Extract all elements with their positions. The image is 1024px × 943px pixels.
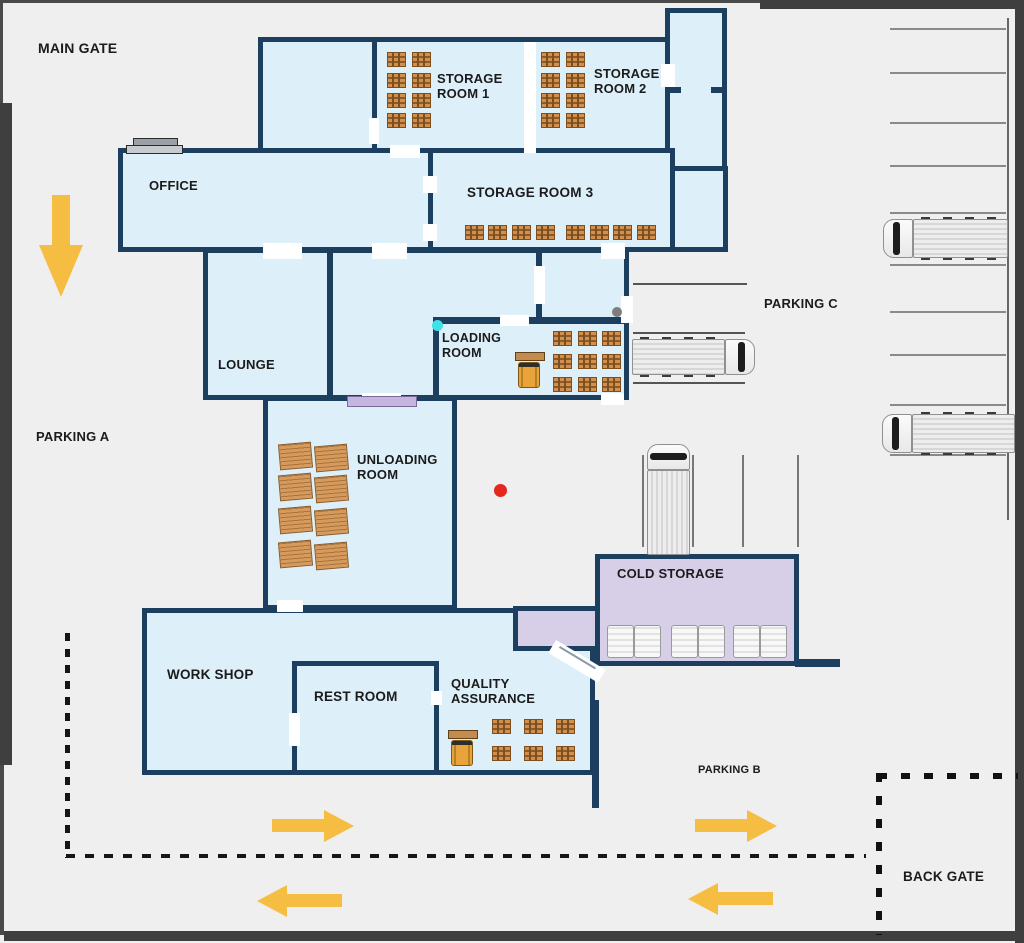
room-storage-3-extension — [670, 166, 728, 252]
label-parking-a: PARKING A — [36, 429, 109, 444]
freezer-unit-icon — [733, 625, 760, 658]
route-line-horizontal — [66, 854, 866, 858]
freezer-unit-icon — [607, 625, 634, 658]
pallet-crate-icon — [541, 113, 560, 128]
label-office: OFFICE — [149, 178, 198, 193]
label-unloading-room: UNLOADING ROOM — [357, 452, 452, 483]
dock-lane-line — [633, 283, 747, 285]
label-cold-storage: COLD STORAGE — [617, 566, 724, 581]
truck-icon — [882, 414, 1015, 453]
door-gap — [390, 145, 420, 158]
label-storage-room-1: STORAGE ROOM 1 — [437, 71, 517, 102]
warehouse-floor-plan: MAIN GATE PARKING A PARKING C PARKING B … — [0, 0, 1024, 943]
route-line-vertical — [65, 633, 70, 858]
room-rest-room — [292, 661, 439, 775]
label-loading-room: LOADING ROOM — [442, 331, 514, 361]
dock-lane-line — [633, 382, 745, 384]
pallet-crate-icon — [488, 225, 507, 240]
pallet-crate-icon — [590, 225, 609, 240]
parking-bay-line — [890, 165, 1006, 167]
door-gap — [372, 243, 407, 259]
pallet-crate-icon — [602, 354, 621, 369]
back-gate-line-top — [878, 773, 1018, 779]
main-gate-opening — [0, 0, 3, 104]
pallet-crate-icon — [556, 719, 575, 734]
pallet-crate-icon — [578, 354, 597, 369]
boundary-left — [0, 103, 12, 765]
label-storage-room-2: STORAGE ROOM 2 — [594, 66, 669, 97]
pallet-crate-icon — [541, 73, 560, 88]
pallet-crate-icon — [387, 113, 406, 128]
door-gap — [601, 243, 625, 259]
pallet-planks-icon — [278, 540, 313, 569]
pallet-crate-icon — [524, 746, 543, 761]
pallet-crate-icon — [566, 93, 585, 108]
forklift-icon — [515, 352, 545, 388]
door-gap — [423, 224, 437, 241]
pallet-crate-icon — [412, 73, 431, 88]
pallet-planks-icon — [314, 475, 349, 504]
parking-bay-line — [890, 28, 1006, 30]
wall-cold-storage-stub — [795, 659, 840, 667]
boundary-bottom — [4, 931, 1024, 941]
parking-bay-line — [890, 264, 1006, 266]
pallet-crate-icon — [566, 113, 585, 128]
pallet-planks-icon — [314, 508, 349, 537]
label-work-shop: WORK SHOP — [167, 667, 254, 683]
label-parking-c: PARKING C — [764, 296, 838, 311]
door-gap — [534, 266, 545, 304]
wall-annex-stub-right — [711, 87, 727, 93]
pallet-crate-icon — [524, 719, 543, 734]
parking-bay-line — [890, 212, 1006, 214]
label-main-gate: MAIN GATE — [38, 40, 117, 57]
pallet-crate-icon — [602, 377, 621, 392]
dock-mat — [347, 396, 417, 407]
pallet-planks-icon — [278, 473, 313, 502]
wall-loading-top — [433, 317, 629, 324]
pallet-crate-icon — [465, 225, 484, 240]
gray-dot-marker — [612, 307, 622, 317]
truck-icon — [647, 444, 690, 555]
parking-slot-line — [692, 455, 694, 547]
door-gap — [289, 713, 300, 746]
pallet-crate-icon — [512, 225, 531, 240]
pallet-planks-icon — [314, 542, 349, 571]
office-desk-icon — [126, 138, 183, 154]
wall-lounge-right — [327, 250, 333, 398]
parking-bay-line — [890, 311, 1006, 313]
freezer-unit-icon — [671, 625, 698, 658]
pallet-crate-icon — [553, 331, 572, 346]
door-gap — [500, 315, 529, 326]
pallet-crate-icon — [578, 331, 597, 346]
pallet-crate-icon — [536, 225, 555, 240]
label-rest-room: REST ROOM — [314, 689, 398, 705]
freezer-unit-icon — [698, 625, 725, 658]
truck-icon — [632, 339, 755, 375]
pallet-planks-icon — [314, 444, 349, 473]
pallet-crate-icon — [637, 225, 656, 240]
pallet-crate-icon — [412, 52, 431, 67]
pallet-crate-icon — [387, 73, 406, 88]
truck-icon — [883, 219, 1008, 258]
cyan-dot-marker — [432, 320, 443, 331]
pallet-crate-icon — [613, 225, 632, 240]
pallet-crate-icon — [566, 225, 585, 240]
door-gap — [263, 243, 302, 259]
label-quality-assurance: QUALITY ASSURANCE — [451, 676, 543, 707]
pallet-crate-icon — [387, 93, 406, 108]
door-gap — [369, 118, 379, 144]
parking-slot-line — [797, 455, 799, 547]
pallet-crate-icon — [412, 113, 431, 128]
parking-bay-line — [890, 122, 1006, 124]
label-back-gate: BACK GATE — [903, 869, 984, 885]
pallet-crate-icon — [541, 52, 560, 67]
pallet-crate-icon — [492, 746, 511, 761]
boundary-right — [1015, 0, 1024, 943]
room-unloading — [263, 396, 457, 610]
wall-loading-left — [433, 322, 439, 398]
parking-bay-line — [890, 404, 1006, 406]
room-anteroom — [258, 37, 377, 157]
door-gap — [423, 176, 437, 193]
label-parking-b: PARKING B — [698, 764, 761, 777]
pallet-crate-icon — [602, 331, 621, 346]
label-lounge: LOUNGE — [218, 357, 275, 372]
door-gap — [524, 42, 536, 153]
pallet-planks-icon — [278, 442, 313, 471]
parking-slot-line — [742, 455, 744, 547]
freezer-unit-icon — [634, 625, 661, 658]
pallet-crate-icon — [541, 93, 560, 108]
red-dot-marker — [494, 484, 507, 497]
pallet-planks-icon — [278, 506, 313, 535]
boundary-top-left — [0, 0, 763, 3]
pallet-crate-icon — [412, 93, 431, 108]
pallet-crate-icon — [566, 73, 585, 88]
wall-qa-stub — [592, 700, 599, 808]
pallet-crate-icon — [566, 52, 585, 67]
parking-slot-line — [642, 455, 644, 547]
door-gap — [601, 393, 624, 405]
pallet-crate-icon — [578, 377, 597, 392]
back-gate-line-left — [876, 773, 882, 935]
dock-door-gap — [621, 296, 633, 323]
parking-bay-line — [890, 354, 1006, 356]
parking-bay-line — [890, 72, 1006, 74]
label-storage-room-3: STORAGE ROOM 3 — [467, 185, 647, 201]
door-gap — [277, 600, 303, 612]
pallet-crate-icon — [492, 719, 511, 734]
dock-lane-line — [633, 332, 745, 334]
boundary-left-lower — [0, 765, 4, 935]
room-office — [118, 148, 433, 252]
pallet-crate-icon — [556, 746, 575, 761]
door-gap — [431, 691, 442, 705]
forklift-icon — [448, 730, 478, 766]
pallet-crate-icon — [553, 377, 572, 392]
pallet-crate-icon — [553, 354, 572, 369]
boundary-top-right — [760, 0, 1024, 9]
freezer-unit-icon — [760, 625, 787, 658]
pallet-crate-icon — [387, 52, 406, 67]
